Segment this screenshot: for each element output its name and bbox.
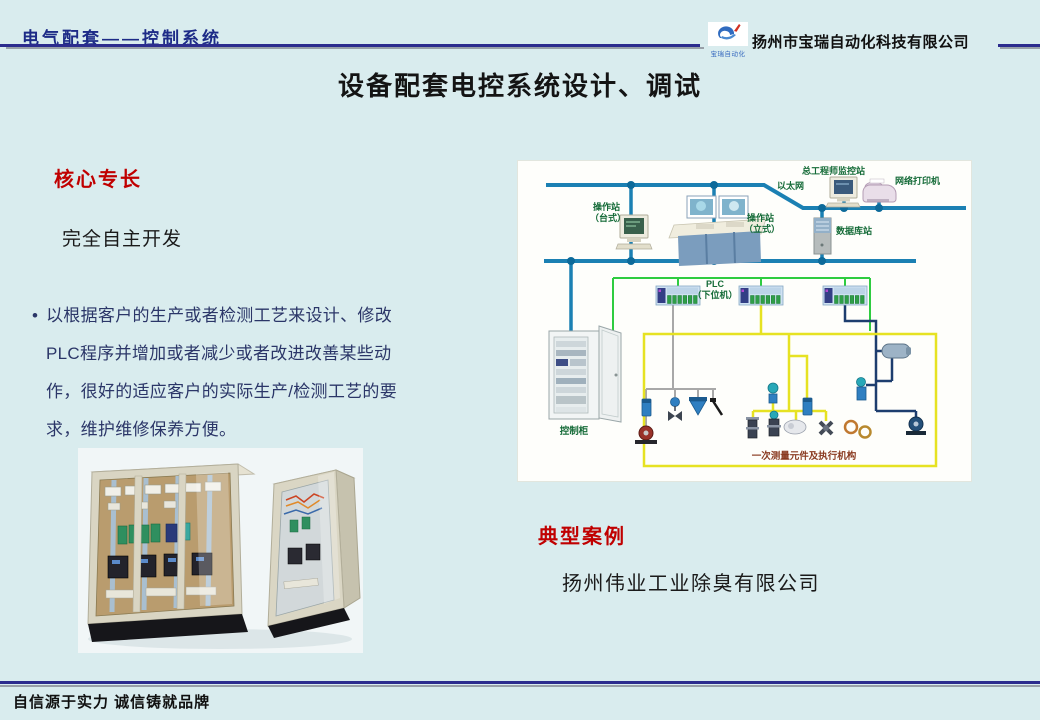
label-printer: 网络打印机	[895, 175, 940, 186]
instrument-x-valve-icon	[820, 422, 832, 434]
instrument-thermowell-icon	[710, 398, 722, 415]
instrument-column-icon	[746, 417, 759, 438]
footer-slogan: 自信源于实力 诚信铸就品牌	[13, 691, 210, 712]
header-rule-gray-right	[1000, 47, 1040, 49]
instrument-cylinder-icon	[803, 398, 812, 415]
logo-swoosh-icon	[708, 22, 748, 46]
instrument-head-transmitter-icon	[768, 383, 778, 403]
label-operator-stand-1: 操作站	[747, 212, 774, 223]
cabinet-right	[268, 470, 360, 638]
label-operator-stand-2: （立式）	[744, 223, 780, 234]
instrument-tank-icon	[882, 344, 911, 358]
cabinet-glass-highlight	[196, 472, 232, 606]
core-bullet-text: 以根据客户的生产或者检测工艺来设计、修改PLC程序并增加或者减少或者改进改善某些…	[46, 297, 420, 449]
core-bullet-item: • 以根据客户的生产或者检测工艺来设计、修改PLC程序并增加或者减少或者改进改善…	[32, 297, 420, 449]
cabinet-left	[88, 464, 254, 642]
instrument-ultrasonic-icon	[784, 420, 806, 434]
control-cabinet-icon	[549, 326, 621, 422]
label-plc-2: （下位机）	[692, 289, 737, 300]
logo-caption: 宝瑞自动化	[708, 51, 748, 58]
navy-field-lines	[845, 304, 916, 417]
core-subheading: 完全自主开发	[62, 224, 182, 251]
case-heading: 典型案例	[538, 520, 626, 549]
label-engineer-station: 总工程师监控站	[802, 165, 865, 176]
plc-rack-icon-3	[823, 286, 867, 305]
footer-rule-gray	[0, 685, 1040, 687]
slide-title: 设备配套电控系统设计、调试	[0, 66, 1040, 103]
plc-rack-icon-2	[739, 286, 783, 305]
presentation-slide: 电气配套——控制系统 宝瑞自动化 扬州市宝瑞自动化科技有限公司 设备配套电控系统…	[0, 0, 1040, 720]
logo-background	[708, 22, 748, 46]
control-cabinets-photo	[78, 448, 363, 653]
label-field-instruments: 一次测量元件及执行机构	[752, 450, 857, 462]
system-diagram: 以太网 操作站 （台式） 操作站 （立式） 总工程师监控站 网络打印机 数据库站…	[517, 160, 972, 482]
label-operator-desktop-1: 操作站	[593, 201, 620, 212]
instrument-pump-icon	[635, 426, 657, 444]
gray-field-lines	[646, 305, 716, 426]
instrument-pump-2-icon	[906, 417, 926, 435]
case-company: 扬州伟业工业除臭有限公司	[562, 567, 820, 596]
yellow-field-lines	[753, 304, 826, 421]
core-heading: 核心专长	[54, 163, 142, 192]
instrument-hose-rings-icon	[845, 421, 871, 438]
label-cabinet: 控制柜	[560, 425, 589, 437]
header-rule-gray-left	[6, 47, 704, 49]
network-printer-icon	[863, 179, 896, 202]
instrument-transmitter-icon	[642, 399, 651, 416]
instrument-valve-icon	[668, 398, 682, 422]
company-logo: 宝瑞自动化	[708, 22, 748, 55]
instrument-flowmeter-icon	[689, 397, 707, 415]
label-operator-desktop-2: （台式）	[590, 212, 626, 223]
label-plc-1: PLC	[706, 279, 725, 289]
label-ethernet: 以太网	[777, 180, 804, 191]
company-name: 扬州市宝瑞自动化科技有限公司	[752, 31, 969, 52]
instrument-column-2-icon	[767, 411, 781, 436]
database-server-icon	[814, 218, 831, 254]
instrument-transmitter-2-icon	[857, 378, 867, 401]
label-database: 数据库站	[836, 225, 872, 236]
bullet-marker: •	[32, 297, 46, 449]
